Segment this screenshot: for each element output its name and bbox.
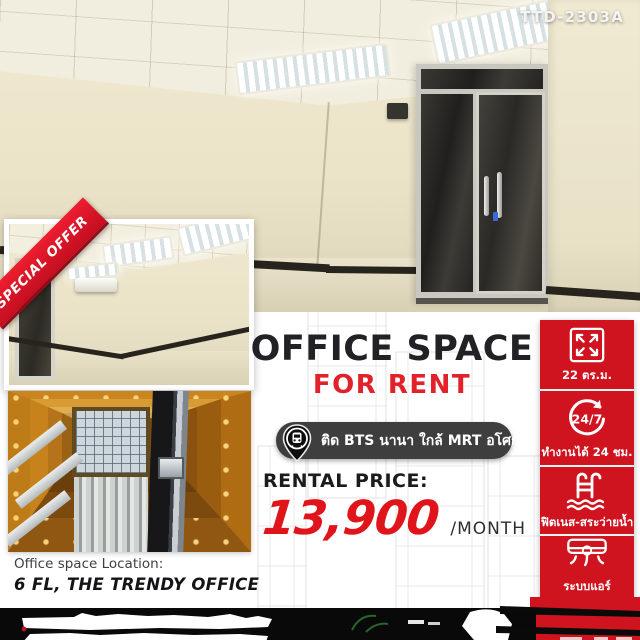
feature-area-size: 22 ตร.ม. [540, 320, 634, 389]
feature-label: 22 ตร.ม. [562, 369, 612, 383]
partition-base [416, 298, 548, 304]
feature-24-7-access: 24/7 ทำงานได้ 24 ชม. [540, 389, 634, 465]
feature-sidebar: 22 ตร.ม. 24/7 ทำงานได้ 24 ชม. ฟิตเนส-สระ… [540, 320, 634, 613]
elevator-cab [158, 457, 184, 479]
air-conditioner-unit [75, 278, 117, 292]
feature-fitness-pool: ฟิตเนส-สระว่ายน้ำ [540, 465, 634, 534]
wall-corner-line [316, 102, 330, 268]
keycard-reader-light [493, 212, 498, 221]
photo-office-room-secondary: SPECIAL OFFER [4, 219, 254, 390]
feature-label: ทำงานได้ 24 ชม. [542, 446, 633, 460]
atrium-skylight [72, 407, 150, 477]
price-unit: /MONTH [450, 519, 526, 539]
feature-label: ฟิตเนส-สระว่ายน้ำ [541, 516, 634, 530]
atrium-floor-court [74, 475, 148, 552]
photo-building-atrium [8, 391, 251, 552]
24-7-clock-icon: 24/7 [564, 397, 610, 441]
headline-block: OFFICE SPACE FOR RENT [250, 331, 534, 400]
air-conditioner-icon [563, 536, 611, 575]
door-handle [497, 172, 502, 218]
location-value: 6 FL, THE TRENDY OFFICE [14, 575, 259, 594]
train-map-pin-icon [280, 423, 314, 465]
poster-title: OFFICE SPACE [250, 331, 534, 367]
door-handle [484, 176, 489, 216]
redacted-contact-bar [0, 608, 536, 640]
swimming-pool-icon [564, 471, 610, 511]
glass-transom-pane [421, 69, 543, 89]
location-block: Office space Location: 6 FL, THE TRENDY … [14, 556, 259, 594]
location-caption: Office space Location: [14, 556, 259, 572]
transit-location-badge: ติด BTS นานา ใกล้ MRT อโศก [276, 422, 512, 459]
glass-partition-door [416, 64, 548, 304]
sidebar-redacted-extension [530, 597, 640, 640]
wall-skirting [326, 266, 420, 274]
poster-subtitle: FOR RENT [250, 370, 534, 400]
expand-arrows-icon [568, 326, 606, 364]
rental-poster: TTD-2303A SPECIAL OFFER [0, 0, 640, 640]
listing-ref-code: TTD-2303A [520, 8, 624, 26]
price-block: RENTAL PRICE: 13,900 /MONTH [263, 470, 539, 543]
feature-label: ระบบแอร์ [563, 580, 610, 594]
price-value: 13,900 [260, 494, 441, 543]
wall-sensor-box [387, 103, 408, 119]
right-wall [548, 0, 640, 312]
price-row: 13,900 /MONTH [263, 494, 539, 543]
transit-badge-label: ติด BTS นานา ใกล้ MRT อโศก [321, 430, 520, 452]
glass-side-pane [421, 94, 473, 292]
svg-text:24/7: 24/7 [572, 411, 603, 426]
rental-price-label: RENTAL PRICE: [263, 470, 539, 492]
